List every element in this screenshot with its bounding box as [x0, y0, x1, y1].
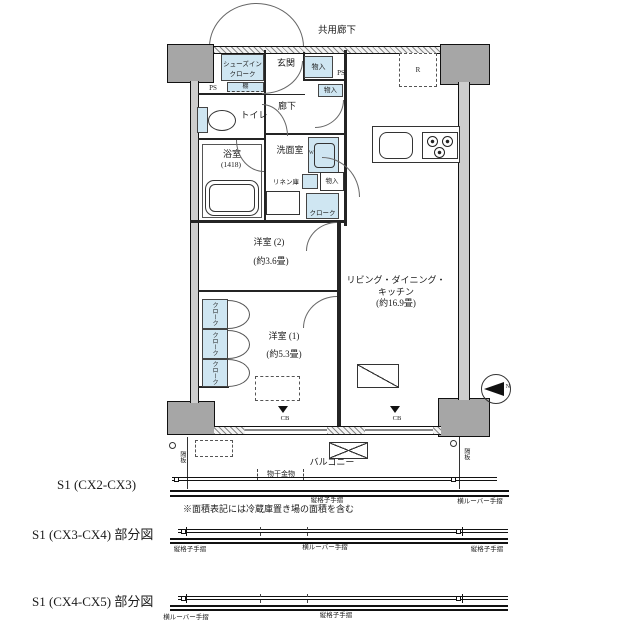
drain-circle [450, 440, 457, 447]
rail-post [174, 477, 179, 482]
storage-hall: 物入 [318, 84, 343, 97]
furniture-placeholder [255, 376, 300, 401]
ldk-area-label: (約16.9畳) [376, 298, 416, 308]
rail-label-vertical-lattice: 縦格子手摺 [471, 546, 504, 553]
corridor-label: 共用廊下 [318, 26, 356, 37]
ac-unit-space [195, 440, 233, 457]
storage-entry: 物入 [304, 56, 333, 78]
compass-north-label: N [506, 384, 510, 390]
rail-tick [260, 594, 261, 603]
toilet-bowl [208, 110, 236, 131]
counter-furniture [357, 364, 399, 388]
cb-left-label: CB [281, 415, 290, 422]
shoes-in-cloak: シューズイン クローク [221, 54, 264, 81]
closet-door-arc [228, 359, 250, 387]
rail-tick [260, 527, 261, 536]
strip-edge-band [170, 605, 508, 611]
bathtub-inner [209, 184, 255, 212]
rail-tick [186, 594, 187, 603]
balcony-rail [172, 477, 497, 481]
rail-post [456, 529, 461, 534]
burner-icon [434, 147, 445, 158]
floor-plan: 共用廊下 シューズイン クローク 棚 PS 玄関 物入 PS 物入 廊下 R ト… [0, 0, 624, 640]
burner-icon [442, 136, 453, 147]
toilet-tank [197, 107, 208, 133]
hall-ldk-door-arc [315, 100, 344, 128]
wall [337, 222, 341, 426]
rail-tick [462, 594, 463, 603]
room1-door-arc [303, 296, 337, 328]
rail-tick [307, 527, 308, 536]
room2-label: 洋室 (2) [254, 237, 285, 247]
bath-size-label: (1418) [221, 161, 241, 170]
shoes-in-cloak-label-2: クローク [222, 68, 263, 78]
refrigerator-space: R [399, 53, 437, 87]
closet-door-arc [228, 300, 250, 329]
kitchen-counter [372, 126, 460, 163]
compass-needle-icon [484, 382, 504, 396]
rail-post [451, 477, 456, 482]
divider-right-label: 隔板 [462, 448, 469, 460]
rail-post [456, 596, 461, 601]
column-top-right [440, 44, 490, 85]
linen-cabinet [302, 174, 318, 189]
burner-icon [427, 136, 438, 147]
vanity [266, 191, 300, 215]
washroom-door-arc [322, 157, 360, 197]
cb-right-label: CB [393, 415, 402, 422]
room2-door-arc [306, 222, 337, 251]
balcony-window-left [245, 426, 327, 435]
rail-tick [462, 527, 463, 536]
ldk-label-1: リビング・ダイニング・ [346, 275, 445, 285]
entrance-door-arc [262, 61, 303, 94]
compass-icon: N [481, 374, 511, 404]
closet: クローク [202, 359, 228, 387]
stove [422, 132, 458, 159]
balcony-partition-left [187, 437, 188, 489]
wall [198, 93, 266, 95]
rail-label-vertical-lattice: 縦格子手摺 [174, 546, 207, 553]
rail-tick [307, 594, 308, 603]
divider-left-label: 隔板 [178, 451, 185, 463]
column-bottom-right [438, 398, 490, 437]
wall [190, 220, 347, 223]
rail-label-louver: 横ルーバー手摺 [457, 498, 502, 505]
bottom-wall-segment [214, 426, 245, 435]
room1-label: 洋室 (1) [269, 331, 300, 341]
entry-step-line [265, 94, 305, 95]
drain-circle [169, 442, 176, 449]
rail-label-louver: 横ルーバー手摺 [163, 614, 208, 621]
column-bottom-left [167, 401, 215, 435]
bathtub [205, 180, 259, 216]
shoes-in-cloak-label-1: シューズイン [222, 58, 263, 68]
ps-right-label: PS [337, 69, 345, 77]
cb-marker-icon [278, 406, 288, 413]
kitchen-sink [379, 132, 413, 159]
shelf: 棚 [227, 82, 264, 92]
section-title-cx4-cx5: S1 (CX4-CX5) 部分図 [32, 595, 153, 610]
wall [198, 290, 339, 292]
balcony-partition-right [459, 437, 460, 489]
balcony-edge-band [170, 490, 509, 497]
washroom-label: 洗面室 [276, 145, 303, 155]
closet: クローク [202, 299, 228, 329]
entry-door-swing-arc [209, 3, 304, 47]
ldk-label-2: キッチン [378, 287, 414, 297]
hallway-label: 廊下 [278, 101, 296, 111]
balcony-label: バルコニー [310, 457, 355, 467]
section-title-cx2-cx3: S1 (CX2-CX3) [57, 478, 136, 493]
closet-door-arc [228, 330, 250, 359]
linen-label: リネン庫 [273, 179, 299, 186]
area-note: ※面積表記には冷蔵庫置き場の面積を含む [183, 504, 354, 514]
washer-mark: W [309, 151, 314, 156]
room2-area-label: (約3.6畳) [253, 256, 288, 266]
section-title-cx3-cx4: S1 (CX3-CX4) 部分図 [32, 528, 153, 543]
rail-tick [186, 527, 187, 536]
bottom-wall-segment [327, 426, 365, 435]
column-top-left [167, 44, 214, 83]
bottom-wall-segment [433, 426, 441, 435]
ps-left-label: PS [209, 84, 217, 92]
wall [303, 79, 347, 81]
balcony-window-right [365, 426, 433, 435]
room1-area-label: (約5.3畳) [266, 349, 301, 359]
closet: クローク [202, 329, 228, 359]
rail-label-louver: 横ルーバー手摺 [302, 544, 347, 551]
rail-label-vertical-lattice: 縦格子手摺 [320, 612, 353, 619]
cb-marker-icon [390, 406, 400, 413]
